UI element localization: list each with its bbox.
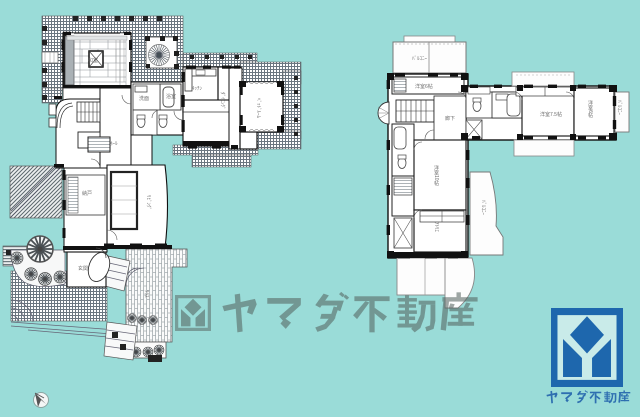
svg-text:ﾊﾞﾙｺﾆｰ: ﾊﾞﾙｺﾆｰ <box>616 100 623 116</box>
svg-text:納戸: 納戸 <box>82 190 92 197</box>
svg-text:ﾘﾋﾞﾝｸﾞ: ﾘﾋﾞﾝｸﾞ <box>145 195 152 210</box>
svg-text:ﾎｰﾙ: ﾎｰﾙ <box>110 141 118 147</box>
svg-text:ﾍﾞｯﾄﾞﾙｰﾑ: ﾍﾞｯﾄﾞﾙｰﾑ <box>255 98 262 119</box>
svg-text:洋室6帖: 洋室6帖 <box>587 99 593 119</box>
svg-text:ﾃﾗｽ: ﾃﾗｽ <box>143 290 149 298</box>
svg-text:洋室6帖: 洋室6帖 <box>415 83 433 90</box>
svg-text:和室: 和室 <box>88 57 98 64</box>
svg-text:ﾊﾞﾙｺﾆｰ: ﾊﾞﾙｺﾆｰ <box>412 55 428 62</box>
svg-text:ｱﾄﾘｴ: ｱﾄﾘｴ <box>433 222 439 233</box>
svg-text:洋室7.5帖: 洋室7.5帖 <box>540 111 562 118</box>
svg-text:ﾀﾞｲﾆﾝｸﾞ: ﾀﾞｲﾆﾝｸﾞ <box>219 92 226 110</box>
svg-text:ｷｯﾁﾝ: ｷｯﾁﾝ <box>192 86 203 92</box>
svg-text:廊下: 廊下 <box>445 115 455 122</box>
svg-text:洗面: 洗面 <box>139 95 149 102</box>
svg-text:洋室10帖: 洋室10帖 <box>433 164 439 187</box>
svg-text:ﾊﾞﾙｺﾆｰ: ﾊﾞﾙｺﾆｰ <box>480 200 487 216</box>
svg-text:玄関: 玄関 <box>78 265 88 272</box>
svg-text:浴室: 浴室 <box>166 93 176 100</box>
